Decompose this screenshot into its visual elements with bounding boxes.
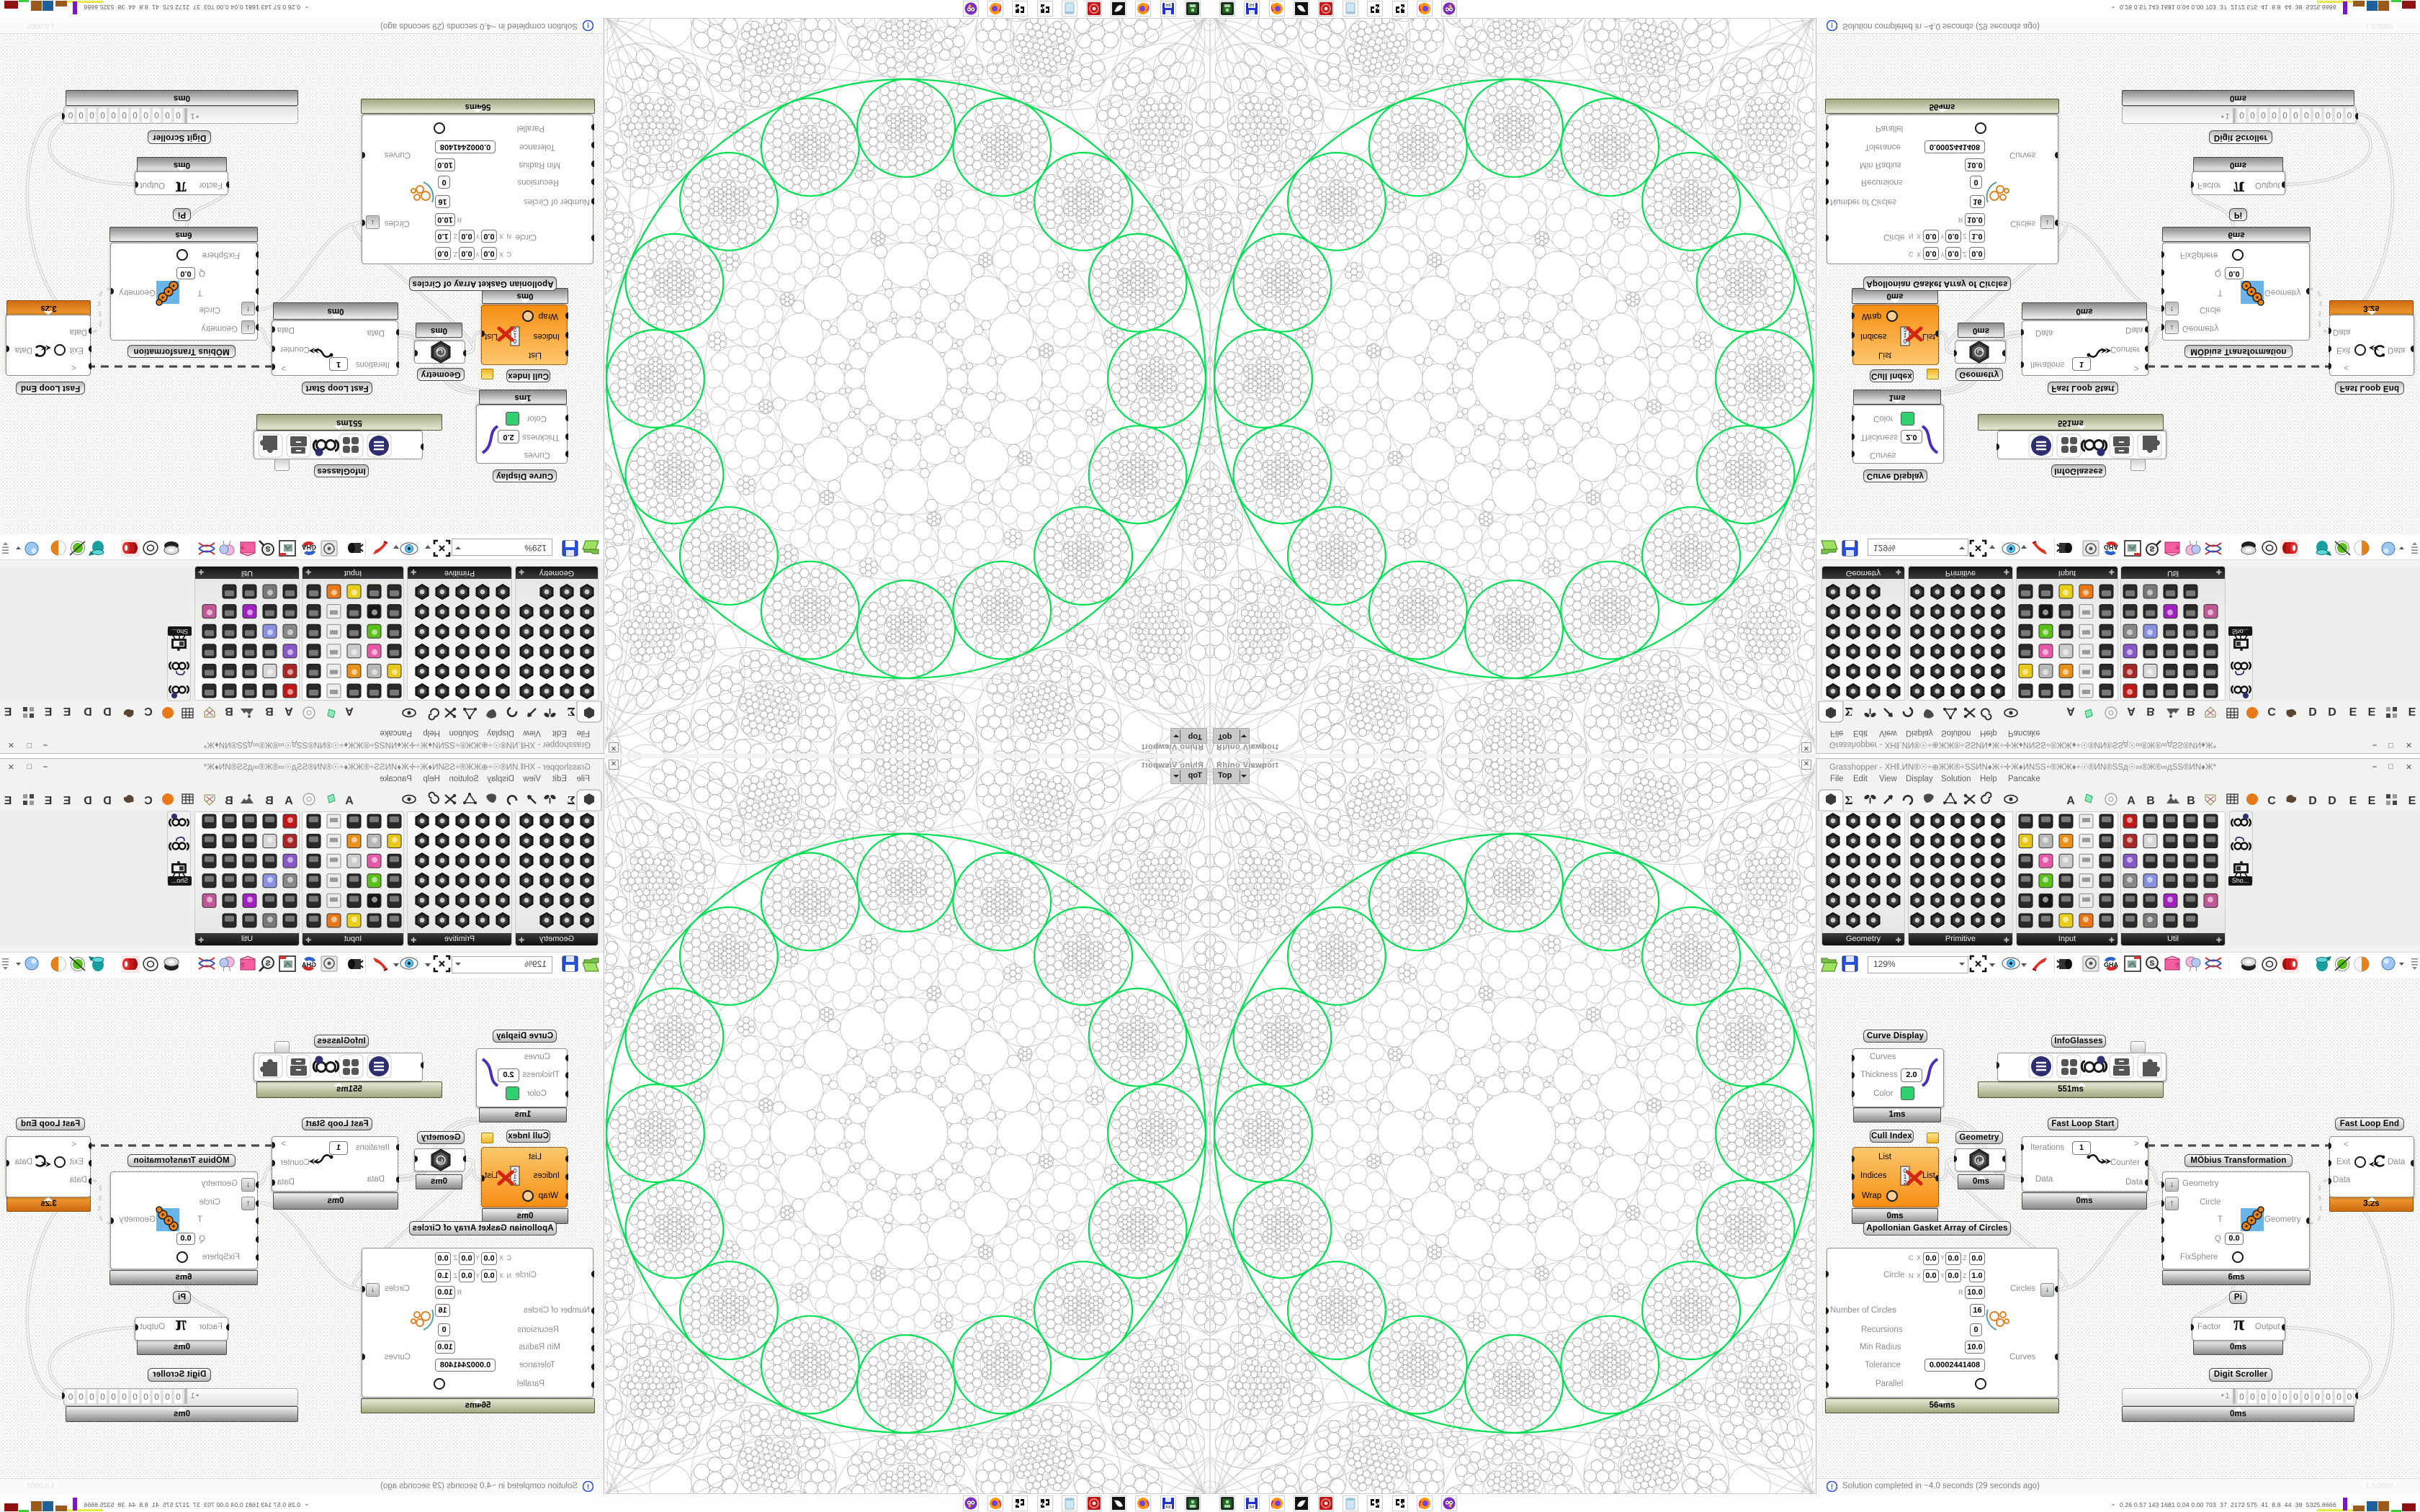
svg-text:E: E — [63, 705, 71, 717]
svg-text:!: ! — [587, 21, 589, 29]
svg-text:A: A — [284, 705, 293, 717]
svg-text:Σ: Σ — [567, 705, 575, 719]
svg-text:E: E — [4, 705, 12, 717]
svg-text:B: B — [265, 705, 274, 717]
svg-text:B: B — [225, 705, 233, 717]
svg-text:64: 64 — [1165, 2, 1170, 6]
svg-text:?: ? — [241, 543, 245, 550]
svg-text:0: 0 — [111, 110, 116, 120]
svg-text:GHA: GHA — [302, 544, 317, 551]
svg-text:0: 0 — [89, 110, 94, 120]
svg-text:D: D — [103, 705, 112, 717]
svg-text:D: D — [84, 705, 92, 717]
svg-text:0: 0 — [165, 110, 170, 120]
svg-text:0: 0 — [79, 110, 84, 120]
svg-text:0: 0 — [122, 110, 127, 120]
svg-text:A: A — [345, 705, 354, 717]
svg-text:0: 0 — [154, 110, 159, 120]
svg-text:0: 0 — [100, 110, 105, 120]
svg-text:0: 0 — [68, 110, 73, 120]
svg-text:0: 0 — [176, 110, 181, 120]
svg-text:1: 1 — [513, 332, 516, 338]
svg-text:C: C — [144, 705, 153, 717]
svg-text:S: S — [265, 544, 270, 552]
svg-text:0: 0 — [143, 110, 148, 120]
svg-text:0: 0 — [133, 110, 138, 120]
svg-text:E: E — [44, 705, 52, 717]
